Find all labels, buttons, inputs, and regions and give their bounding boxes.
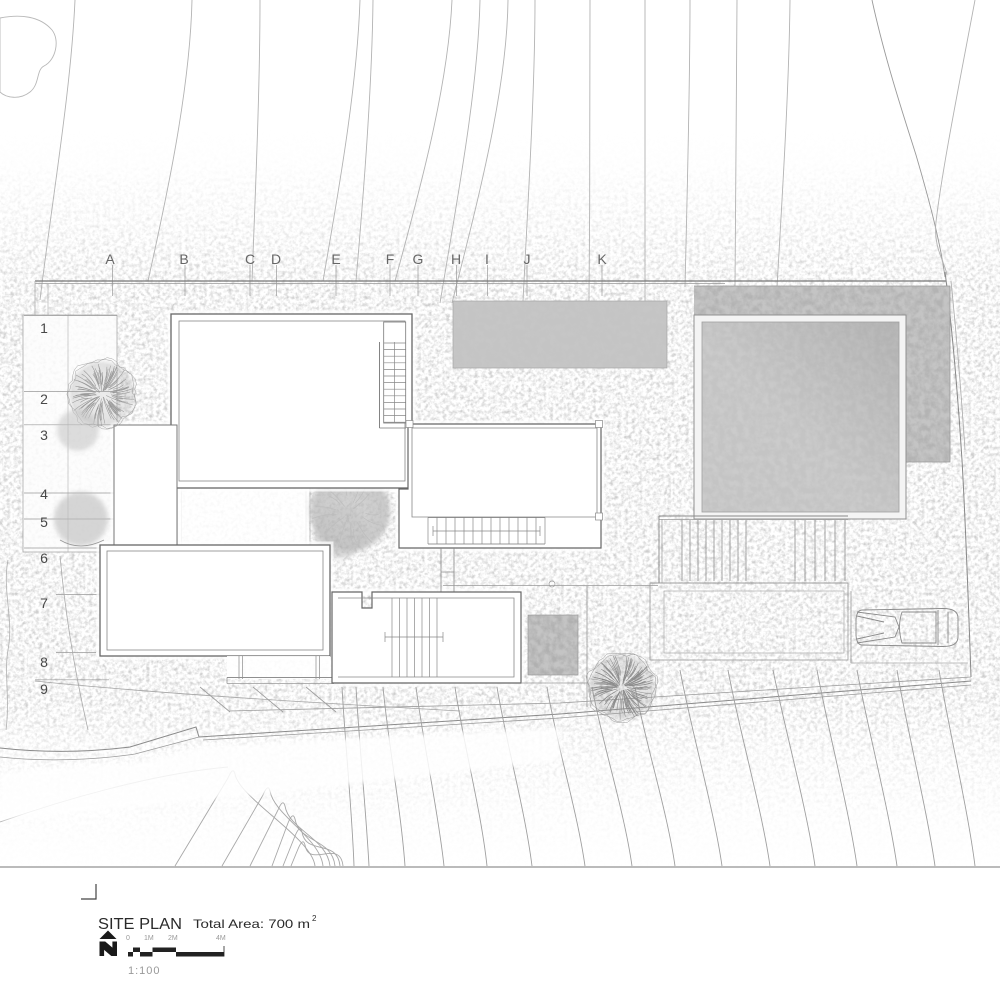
- svg-text:K: K: [597, 251, 607, 267]
- svg-text:1M: 1M: [144, 935, 154, 942]
- svg-text:SITE PLAN: SITE PLAN: [98, 916, 182, 933]
- svg-text:G: G: [413, 251, 424, 267]
- svg-text:7: 7: [40, 595, 48, 611]
- svg-text:E: E: [331, 251, 340, 267]
- svg-text:F: F: [386, 251, 395, 267]
- svg-text:8: 8: [40, 654, 48, 670]
- svg-text:2M: 2M: [168, 935, 178, 942]
- svg-text:9: 9: [40, 681, 48, 697]
- svg-text:5: 5: [40, 514, 48, 530]
- svg-text:4M: 4M: [216, 935, 226, 942]
- svg-text:C: C: [245, 251, 255, 267]
- svg-text:I: I: [485, 251, 489, 267]
- svg-text:6: 6: [40, 550, 48, 566]
- svg-text:J: J: [524, 251, 531, 267]
- svg-text:Total Area: 700 m: Total Area: 700 m: [193, 917, 310, 931]
- svg-text:0: 0: [126, 935, 130, 942]
- svg-text:1:100: 1:100: [128, 965, 161, 977]
- svg-text:2: 2: [40, 391, 48, 407]
- svg-text:D: D: [271, 251, 281, 267]
- svg-text:2: 2: [312, 914, 317, 923]
- svg-text:H: H: [451, 251, 461, 267]
- svg-text:3: 3: [40, 427, 48, 443]
- svg-text:B: B: [179, 251, 188, 267]
- svg-text:4: 4: [40, 486, 48, 502]
- svg-text:A: A: [105, 251, 115, 267]
- svg-text:1: 1: [40, 320, 48, 336]
